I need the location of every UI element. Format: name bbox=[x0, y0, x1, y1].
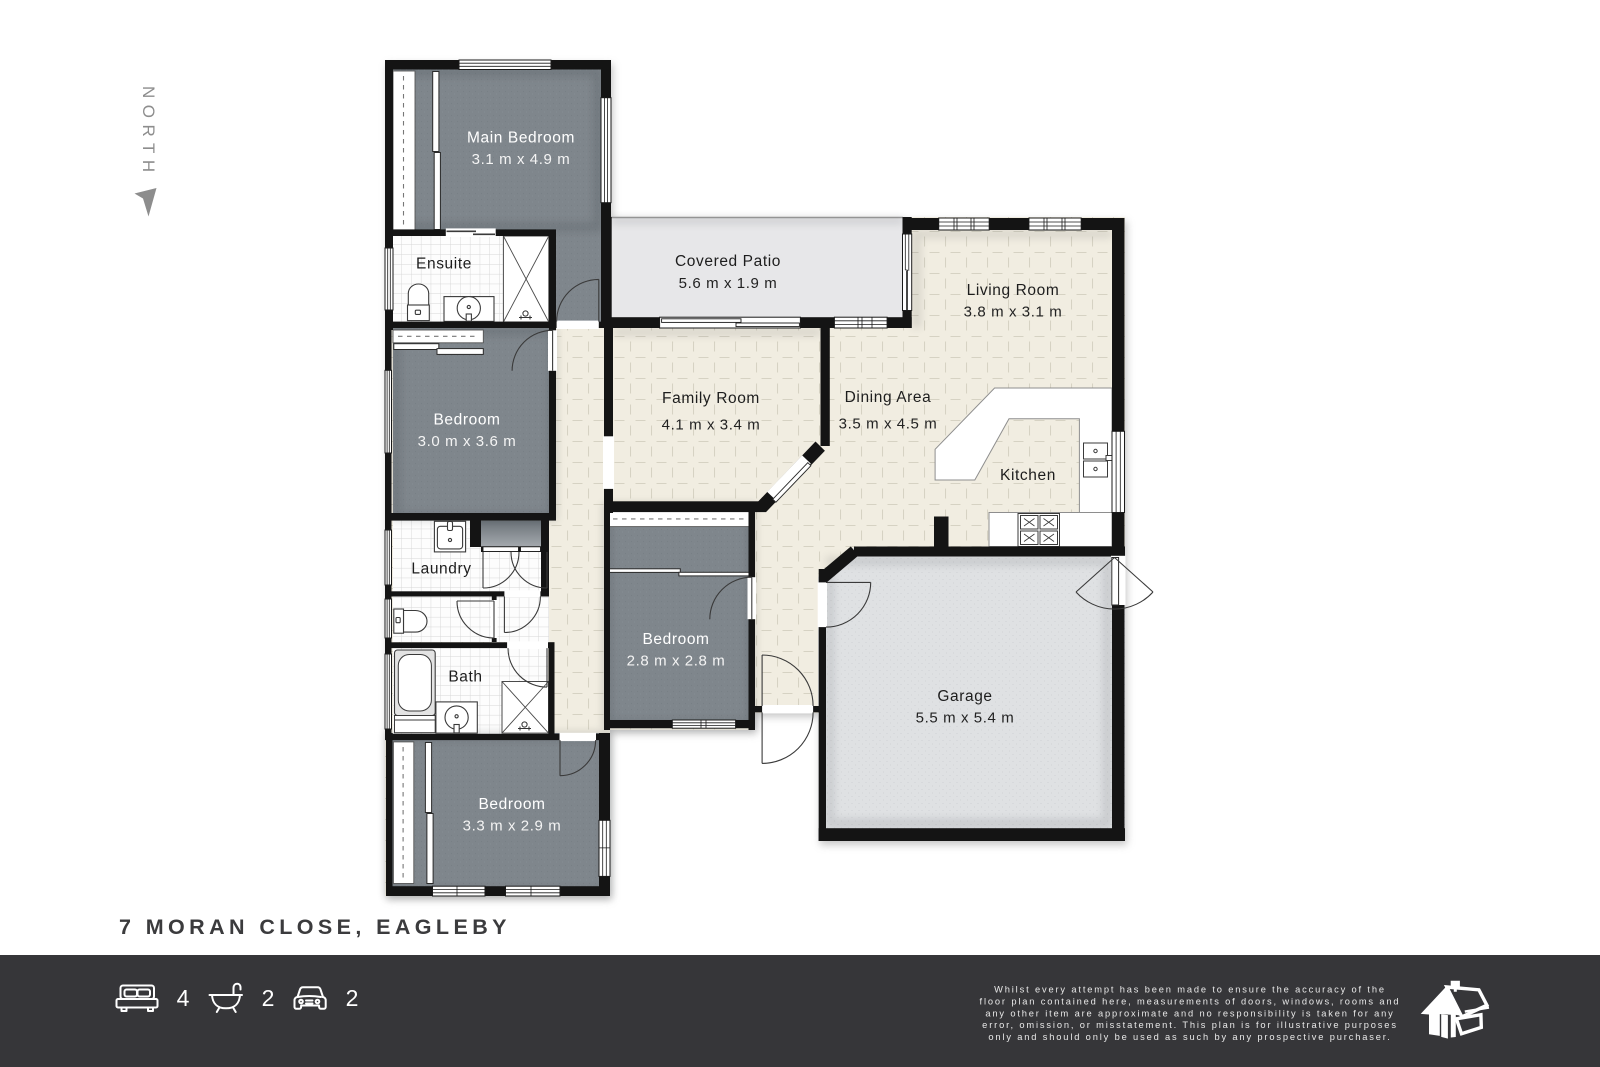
svg-text:error, omission, or misstateme: error, omission, or misstatement. This p… bbox=[982, 1020, 1398, 1030]
svg-text:Laundry: Laundry bbox=[411, 561, 471, 578]
svg-text:Bedroom: Bedroom bbox=[642, 631, 709, 648]
svg-text:3.1 m x 4.9 m: 3.1 m x 4.9 m bbox=[472, 151, 571, 168]
svg-text:floor plan contained here, mea: floor plan contained here, measurements … bbox=[980, 996, 1401, 1006]
svg-text:Living Room: Living Room bbox=[967, 282, 1060, 299]
svg-text:Main Bedroom: Main Bedroom bbox=[467, 130, 575, 147]
svg-text:3.3 m x 2.9 m: 3.3 m x 2.9 m bbox=[463, 818, 562, 835]
svg-text:Whilst every attempt has been: Whilst every attempt has been made to en… bbox=[994, 985, 1386, 995]
svg-text:Kitchen: Kitchen bbox=[1000, 467, 1056, 484]
svg-text:7 MORAN CLOSE, EAGLEBY: 7 MORAN CLOSE, EAGLEBY bbox=[119, 915, 511, 939]
svg-text:4.1 m x 3.4 m: 4.1 m x 3.4 m bbox=[662, 417, 761, 434]
svg-text:3.0 m x 3.6 m: 3.0 m x 3.6 m bbox=[418, 433, 517, 450]
svg-text:Bedroom: Bedroom bbox=[478, 796, 545, 813]
svg-text:Bath: Bath bbox=[448, 669, 482, 686]
svg-text:2.8 m x 2.8 m: 2.8 m x 2.8 m bbox=[627, 653, 726, 670]
svg-text:Ensuite: Ensuite bbox=[416, 256, 472, 273]
svg-text:NORTH: NORTH bbox=[139, 86, 158, 179]
svg-text:Family Room: Family Room bbox=[662, 390, 760, 407]
svg-text:3.8 m x 3.1 m: 3.8 m x 3.1 m bbox=[964, 304, 1063, 321]
svg-text:5.5 m x 5.4 m: 5.5 m x 5.4 m bbox=[916, 710, 1015, 727]
svg-text:Dining Area: Dining Area bbox=[845, 389, 932, 406]
svg-text:Bedroom: Bedroom bbox=[433, 412, 500, 429]
svg-text:3.5 m x 4.5 m: 3.5 m x 4.5 m bbox=[839, 416, 938, 433]
svg-text:2: 2 bbox=[346, 985, 359, 1011]
svg-text:only and should only be used a: only and should only be used as such by … bbox=[988, 1032, 1391, 1042]
svg-text:5.6 m x 1.9 m: 5.6 m x 1.9 m bbox=[679, 275, 778, 292]
svg-text:Covered Patio: Covered Patio bbox=[675, 253, 781, 270]
svg-text:any other item are approximate: any other item are approximate and no re… bbox=[985, 1008, 1394, 1018]
svg-text:4: 4 bbox=[177, 985, 190, 1011]
svg-text:2: 2 bbox=[262, 985, 275, 1011]
svg-text:Garage: Garage bbox=[937, 688, 992, 705]
